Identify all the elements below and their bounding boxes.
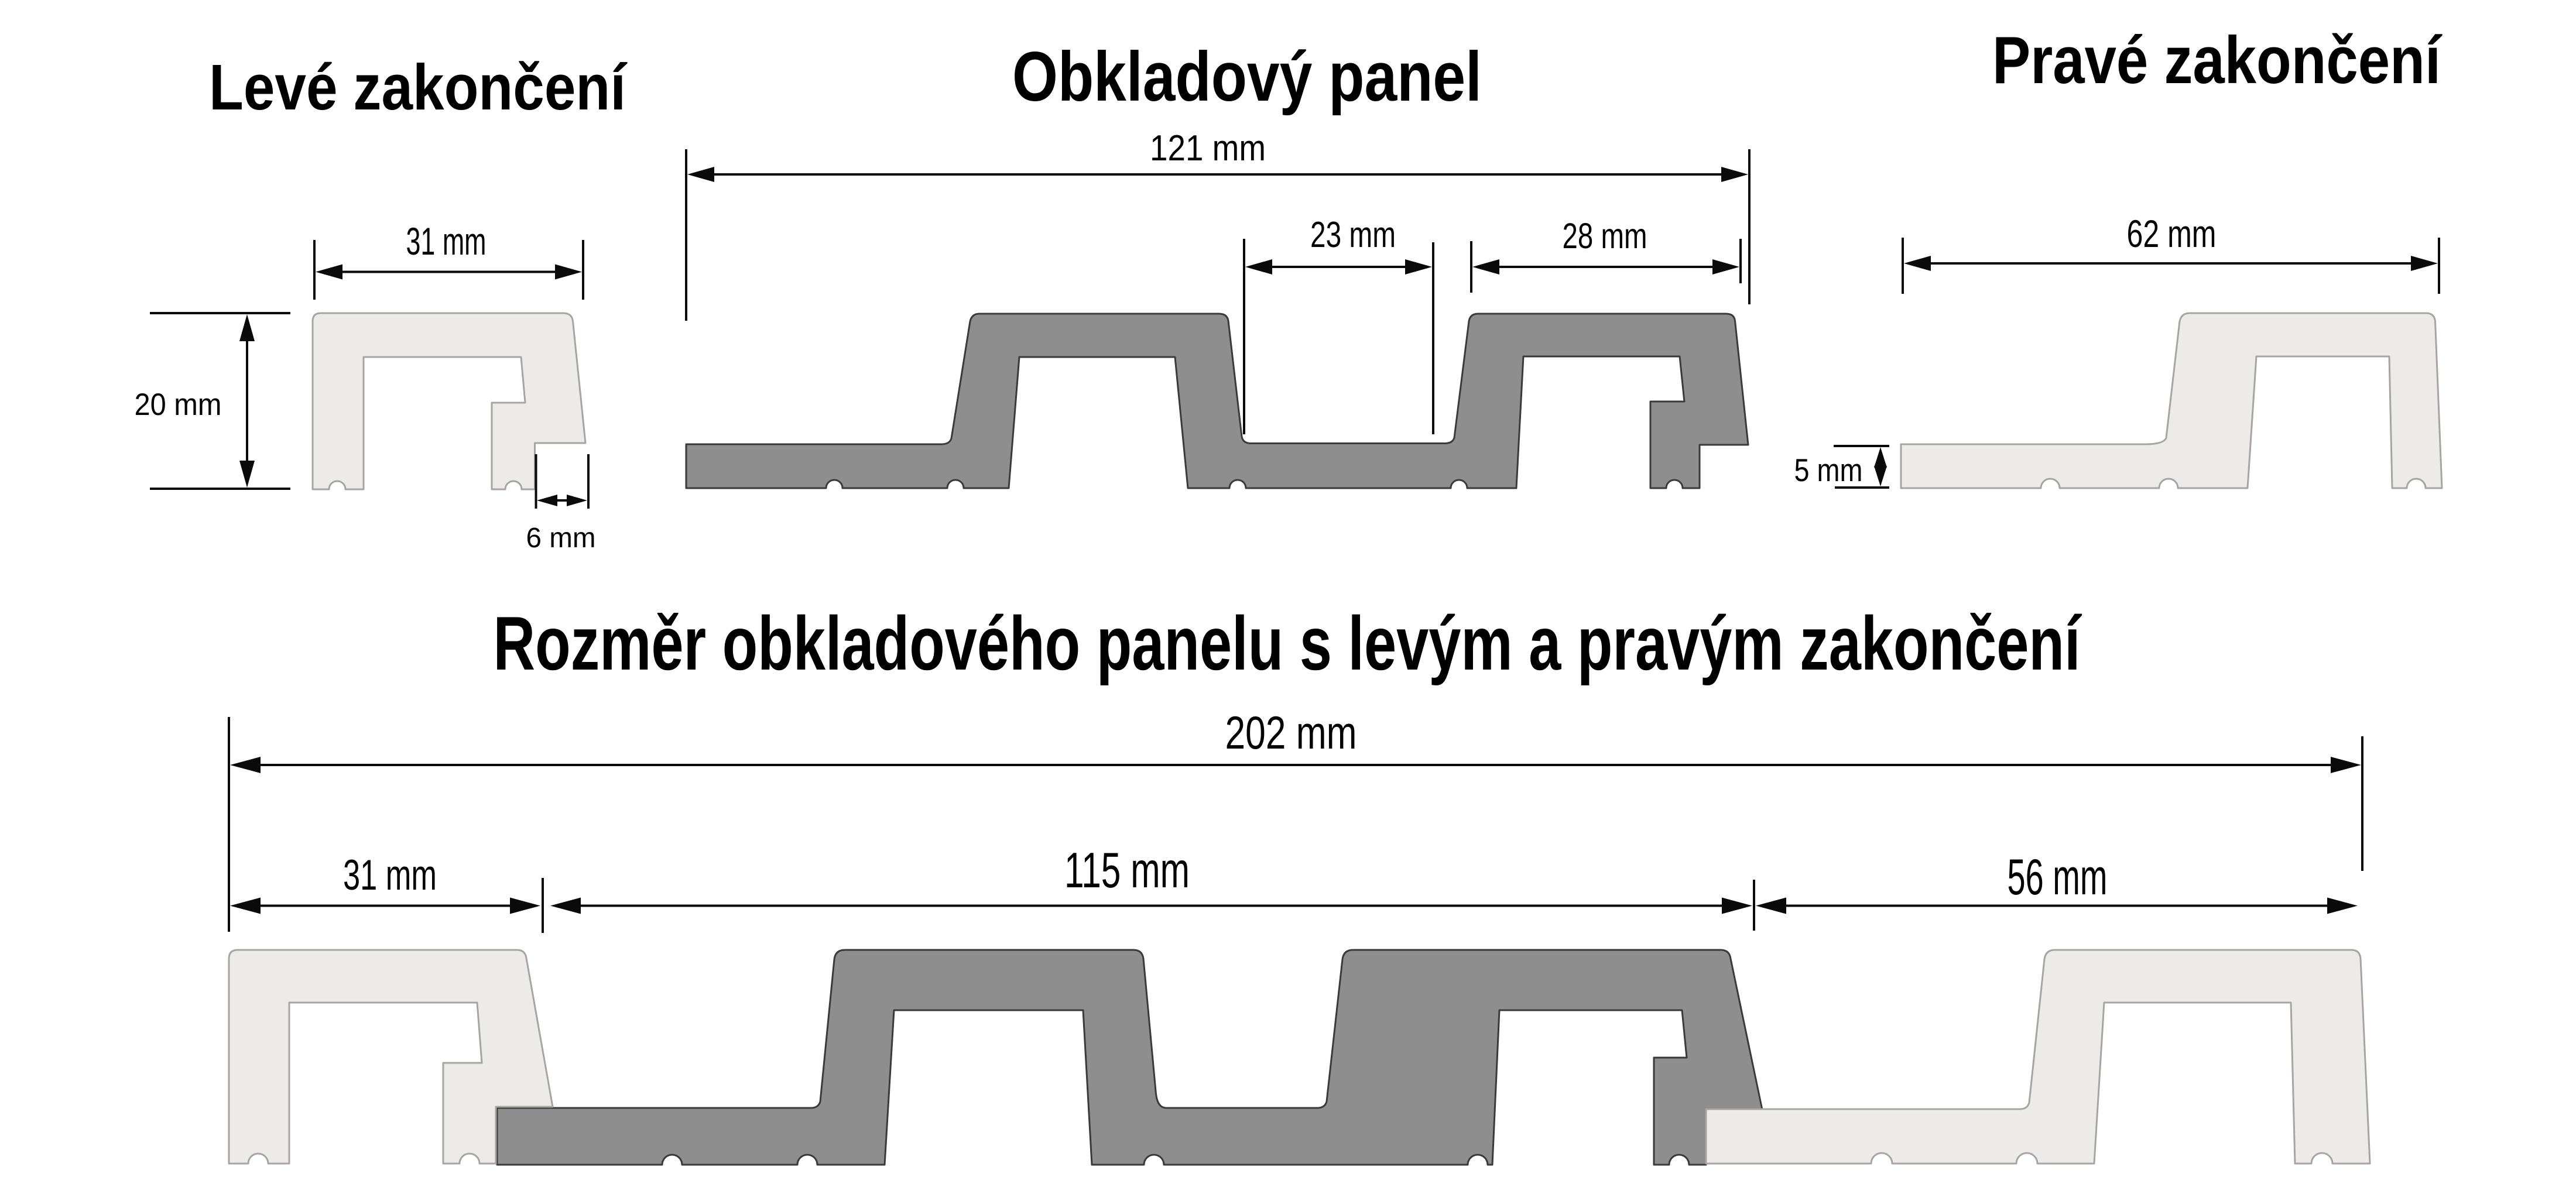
svg-text:31 mm: 31 mm: [343, 852, 437, 899]
svg-text:28 mm: 28 mm: [1563, 216, 1647, 256]
svg-text:31 mm: 31 mm: [406, 219, 487, 263]
svg-text:23 mm: 23 mm: [1310, 215, 1396, 255]
svg-text:5 mm: 5 mm: [1794, 452, 1863, 488]
svg-text:Pravé zakončení: Pravé zakončení: [1992, 23, 2443, 98]
svg-text:121 mm: 121 mm: [1150, 128, 1266, 169]
svg-text:202 mm: 202 mm: [1225, 706, 1357, 759]
svg-text:115 mm: 115 mm: [1064, 843, 1190, 898]
svg-text:Obkladový panel: Obkladový panel: [1012, 37, 1482, 116]
svg-text:56 mm: 56 mm: [2008, 849, 2108, 905]
svg-text:Rozměr obkladového panelu s le: Rozměr obkladového panelu s levým a prav…: [494, 600, 2082, 686]
svg-text:62 mm: 62 mm: [2127, 212, 2217, 255]
svg-text:20 mm: 20 mm: [135, 387, 222, 422]
svg-text:6 mm: 6 mm: [526, 523, 596, 554]
svg-text:Levé zakončení: Levé zakončení: [209, 52, 628, 123]
